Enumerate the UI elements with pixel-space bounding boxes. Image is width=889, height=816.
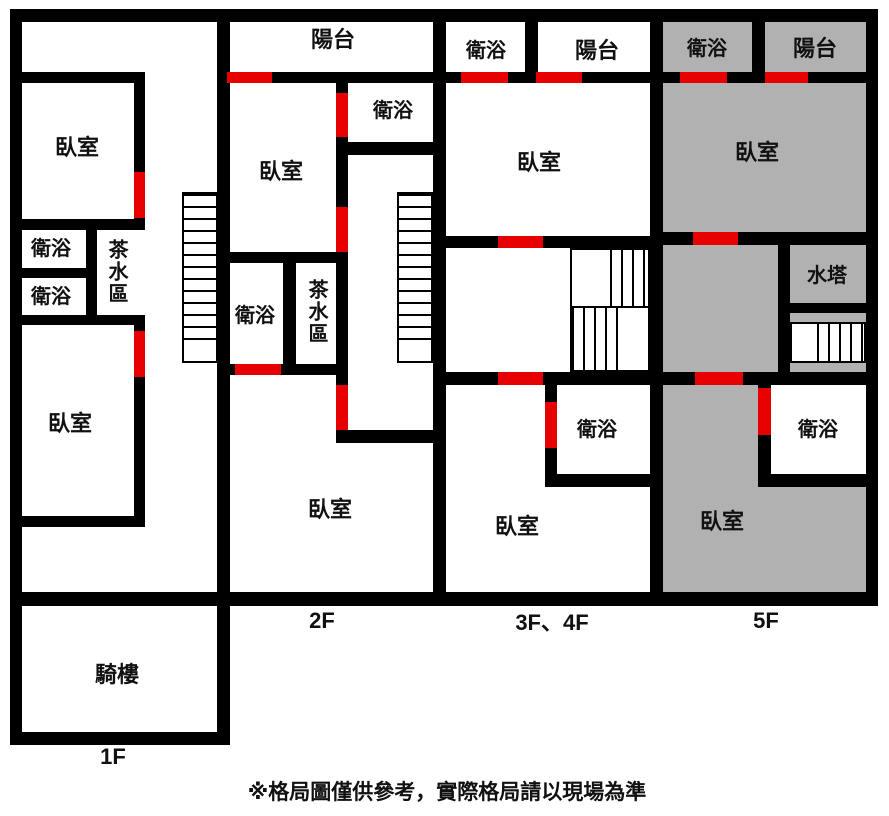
door-marker <box>498 372 543 385</box>
room-label-water-tower-5f: 水塔 <box>807 266 847 286</box>
door-marker <box>134 331 145 377</box>
room-fill-bedroom-lower-5f <box>663 385 758 592</box>
wall <box>283 263 296 375</box>
stair-treads <box>399 194 431 344</box>
room-fill-hall-5f <box>663 245 778 372</box>
door-marker <box>235 364 281 375</box>
wall <box>778 303 866 313</box>
room-label-bedroom-lower-5f: 臥室 <box>700 511 744 533</box>
floor-plan-canvas: 臥室 衛浴 衛浴 茶水區 臥室 騎樓 1F 陽台 衛浴 臥室 衛浴 茶水區 臥室… <box>0 0 889 816</box>
room-label-bath-top-5f: 衛浴 <box>687 39 727 59</box>
room-label-tea-area-2f: 茶水區 <box>305 279 327 345</box>
room-label-bedroom-lower-1f: 臥室 <box>48 413 92 435</box>
stairs-5f <box>790 322 866 363</box>
wall <box>10 516 145 527</box>
wall <box>336 142 446 155</box>
room-label-bedroom-upper-2f: 臥室 <box>259 161 303 183</box>
floor-label-2f: 2F <box>309 608 335 634</box>
stairs-2f <box>397 192 433 363</box>
wall <box>545 474 663 487</box>
wall <box>446 236 650 248</box>
room-label-bath-upper-2f: 衛浴 <box>373 101 413 121</box>
wall-left <box>10 9 22 745</box>
room-label-arcade-1f: 騎樓 <box>95 664 139 686</box>
stair-treads <box>572 308 618 372</box>
floor-label-3f4f: 3F、4F <box>515 605 588 637</box>
stairs-1f <box>182 192 218 363</box>
wall <box>336 430 446 443</box>
room-label-bath-lower-2f: 衛浴 <box>235 306 275 326</box>
door-marker <box>461 72 508 83</box>
door-marker <box>765 72 808 83</box>
wall <box>217 252 348 263</box>
floor-label-1f: 1F <box>100 744 126 770</box>
wall <box>758 474 878 487</box>
floor-label-5f: 5F <box>753 608 779 634</box>
wall-divider-3f-5f <box>650 9 663 606</box>
room-label-tea-area-1f: 茶水區 <box>105 239 127 305</box>
room-fill-bedroom-lower-5f-b <box>757 487 866 592</box>
stair-treads <box>610 250 650 308</box>
room-label-balcony-2f: 陽台 <box>311 29 355 51</box>
wall <box>650 372 878 385</box>
wall <box>778 245 790 385</box>
door-marker <box>545 402 557 448</box>
door-marker <box>336 93 348 137</box>
door-marker <box>227 72 272 83</box>
stair-treads <box>184 194 216 344</box>
stairs-3f4f <box>570 248 650 372</box>
room-label-bedroom-lower-2f: 臥室 <box>308 499 352 521</box>
door-marker <box>498 236 543 248</box>
room-label-bath-mid-5f: 衛浴 <box>798 420 838 440</box>
room-label-balcony-5f: 陽台 <box>793 38 837 60</box>
door-marker <box>536 72 582 83</box>
door-marker <box>336 207 348 252</box>
stair-treads <box>817 324 866 361</box>
room-label-balcony-3f4f: 陽台 <box>575 40 619 62</box>
wall <box>10 72 145 83</box>
room-label-bath-2-1f: 衛浴 <box>31 287 71 307</box>
room-label-bedroom-upper-5f: 臥室 <box>735 142 779 164</box>
room-label-bedroom-upper-3f4f: 臥室 <box>517 152 561 174</box>
room-label-bedroom-upper-1f: 臥室 <box>55 137 99 159</box>
disclaimer-text: ※格局圖僅供參考，實際格局請以現場為準 <box>248 776 646 806</box>
door-marker <box>134 172 145 218</box>
wall-divider-2f-3f <box>433 9 446 606</box>
door-marker <box>695 372 743 385</box>
wall <box>10 268 97 278</box>
room-label-bath-mid-3f4f: 衛浴 <box>577 420 617 440</box>
room-label-bath-1-1f: 衛浴 <box>31 239 71 259</box>
door-marker <box>336 385 348 430</box>
door-marker <box>680 72 727 83</box>
wall-right <box>866 9 878 606</box>
room-label-bedroom-lower-3f4f: 臥室 <box>495 516 539 538</box>
wall <box>10 315 145 325</box>
room-label-bath-top-3f4f: 衛浴 <box>466 41 506 61</box>
wall <box>86 230 97 325</box>
door-marker <box>758 388 771 435</box>
wall-divider-1f-2f <box>217 9 230 745</box>
door-marker <box>693 232 738 245</box>
wall <box>10 219 145 230</box>
